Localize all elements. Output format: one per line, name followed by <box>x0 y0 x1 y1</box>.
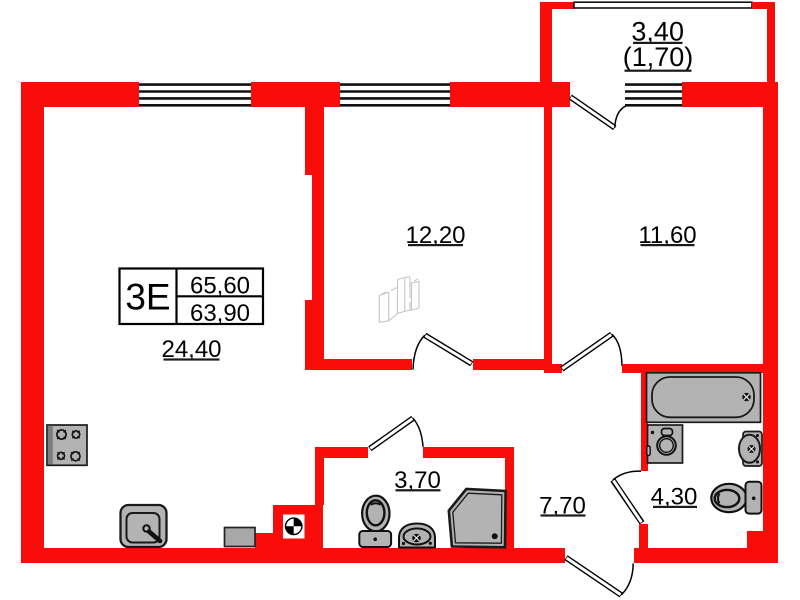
svg-text:63,90: 63,90 <box>190 300 250 327</box>
svg-text:(1,70): (1,70) <box>623 42 694 72</box>
svg-text:3Е: 3Е <box>125 277 170 318</box>
svg-text:65,60: 65,60 <box>190 272 250 299</box>
